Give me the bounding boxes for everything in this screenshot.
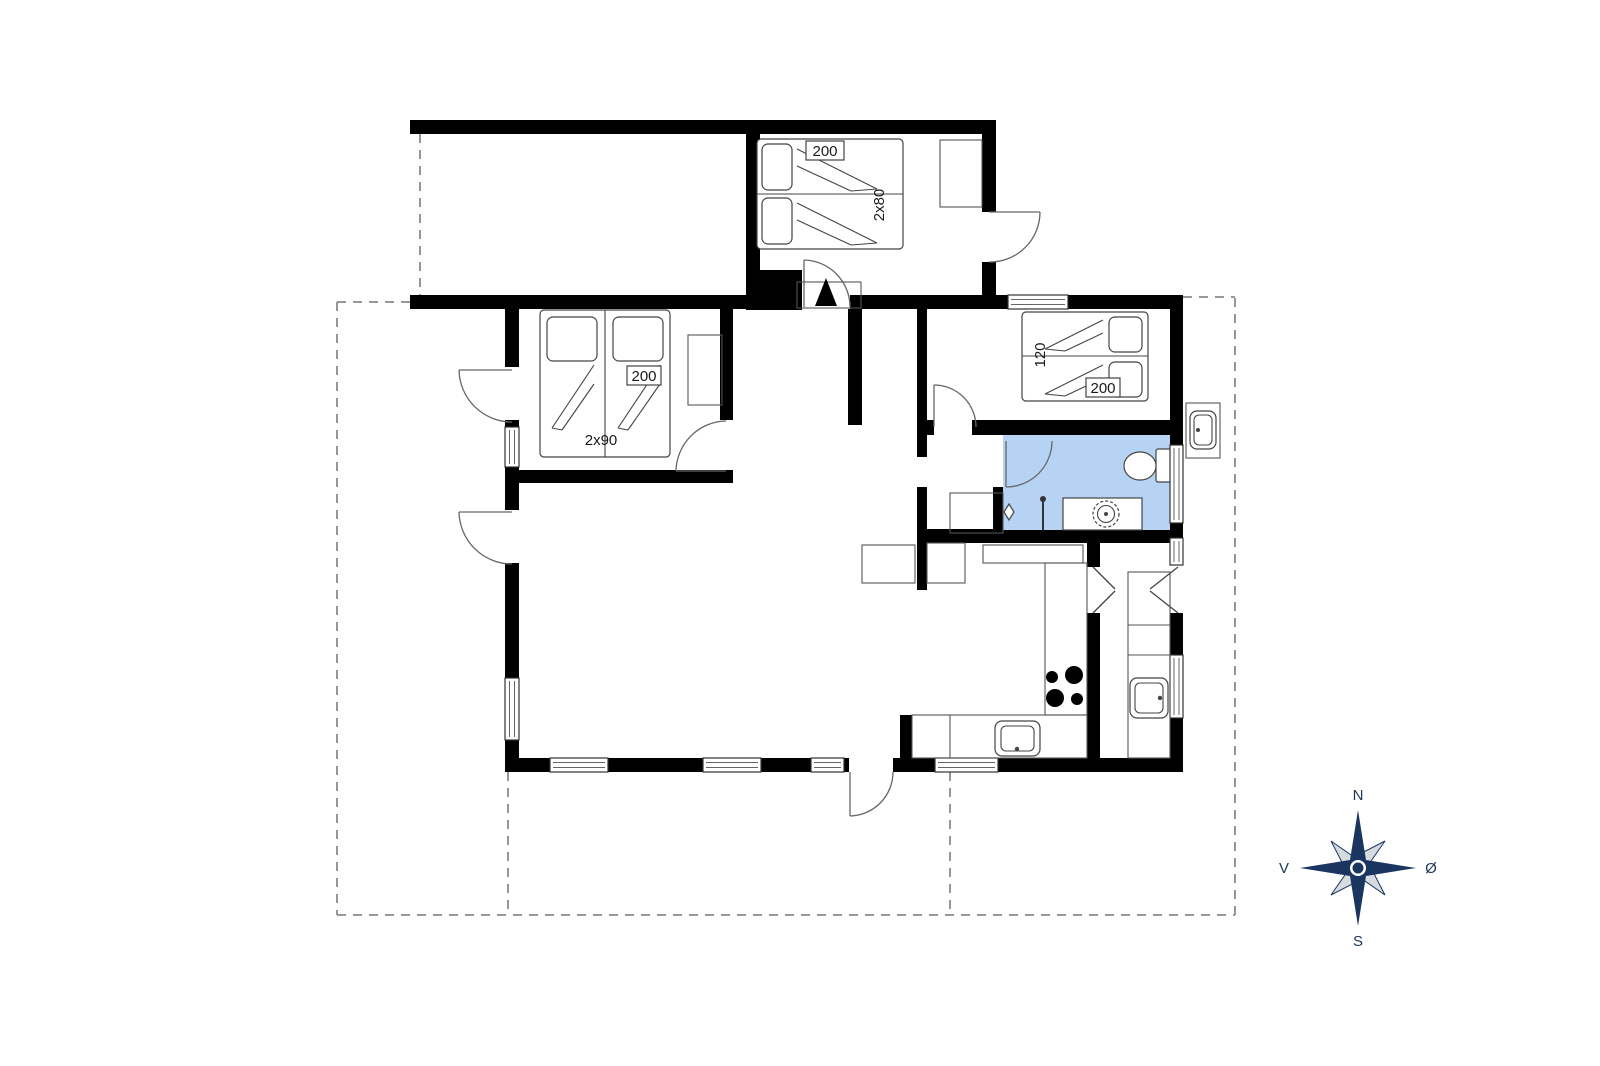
kitchen-counter-top: [983, 545, 1083, 563]
wall-bedroom-right-south-a: [927, 420, 934, 435]
window-west-bedroom-left: [505, 427, 519, 467]
window-east-hall: [1170, 538, 1183, 565]
stove: [1046, 666, 1083, 707]
compass-north-label: N: [1353, 787, 1364, 804]
wall-south-3: [761, 758, 811, 772]
bed-length-label: 200: [1090, 380, 1115, 397]
wall-east-4: [1170, 718, 1183, 772]
window-north-bedroom-right: [1008, 295, 1068, 309]
window-south-2: [703, 758, 761, 772]
floor-plan-canvas: 200 2x80 200 2x90 120 200: [0, 0, 1600, 1066]
wall-east-3: [1170, 613, 1183, 655]
window-east-bathroom: [1170, 445, 1183, 523]
window-south-3: [811, 758, 844, 772]
kitchen: [912, 543, 1087, 758]
openings: [1093, 567, 1178, 613]
pillow: [547, 317, 597, 361]
opening-kitchen-hall-a: [1093, 567, 1115, 589]
wall-south-6: [998, 758, 1183, 772]
wall-kitchen-divider-b: [1087, 613, 1100, 758]
bed-width-label: 2x80: [871, 189, 888, 222]
compass-rose: N S V Ø: [1279, 787, 1437, 950]
window-south-1: [550, 758, 608, 772]
door-bedroom-right: [934, 385, 976, 427]
utility-counter: [1128, 572, 1170, 758]
wall-annex-east-upper: [982, 134, 996, 212]
kitchen-cabinet-nw: [927, 543, 965, 583]
pillow: [613, 317, 663, 361]
wall-west-2: [505, 420, 519, 427]
pillow: [762, 144, 792, 190]
pillow: [762, 198, 792, 244]
door-living-exterior-west: [459, 512, 512, 564]
door-living-exterior-south: [850, 772, 893, 816]
wardrobe-bedroom-left: [688, 335, 722, 405]
wall-south-4: [844, 758, 849, 772]
compass-south-label: S: [1353, 933, 1363, 950]
window-east-utility: [1170, 655, 1183, 718]
wall-west-4: [505, 563, 519, 678]
toilet: [1124, 449, 1172, 482]
wall-annex-north: [410, 120, 996, 134]
opening-east-a: [1150, 567, 1178, 589]
wall-hall-west: [848, 309, 862, 425]
wall-bedroom-right-south-b: [972, 420, 1183, 435]
outdoor-sink: [1186, 403, 1220, 458]
bed-left-twin: 200 2x90: [540, 310, 670, 457]
door-bedroom-left-exterior: [459, 370, 512, 422]
window-west-living: [505, 678, 519, 740]
wall-entry-chunk: [746, 270, 802, 310]
door-bedroom-left-interior: [676, 421, 726, 471]
wall-north-b: [1068, 295, 1183, 309]
bed-length-label: 200: [812, 143, 837, 160]
wall-west-1: [505, 309, 519, 367]
opening-kitchen-hall-b: [1093, 591, 1115, 613]
wall-north-a: [850, 295, 1008, 309]
utility-sink: [1130, 678, 1168, 718]
bed-right-twin: 120 200: [1022, 312, 1148, 401]
compass-west-label: V: [1279, 860, 1289, 877]
opening-east-b: [1150, 591, 1178, 613]
wall-carport-south: [410, 295, 746, 309]
wall-south-2: [608, 758, 703, 772]
wall-south-5: [893, 758, 935, 772]
wall-hall-east-a: [917, 309, 927, 457]
compass-east-label: Ø: [1425, 860, 1437, 877]
bathroom-vanity: [1063, 498, 1142, 530]
utility-room: [1128, 572, 1170, 758]
bed-annex-double: 200 2x80: [757, 139, 903, 249]
kitchen-sink: [995, 721, 1040, 756]
compass-center: [1353, 863, 1364, 874]
bathroom: [1003, 435, 1172, 530]
bed-width-label: 120: [1032, 342, 1049, 367]
wardrobe-annex: [940, 140, 982, 207]
wall-kitchen-divider-a: [1087, 543, 1100, 567]
wall-bathroom-south: [917, 529, 1183, 543]
door-annex-bedroom-exterior: [989, 212, 1040, 262]
bed-length-label: 200: [631, 368, 656, 385]
wall-south-1: [505, 758, 550, 772]
wall-bedroom-left-south: [505, 470, 733, 483]
wall-kitchen-stub: [900, 715, 912, 772]
floor-plan-page: 200 2x80 200 2x90 120 200: [0, 0, 1600, 1066]
sideboard-living: [862, 545, 915, 583]
basin-drain: [1104, 512, 1108, 516]
window-south-4: [935, 758, 998, 772]
pillow: [1109, 317, 1142, 352]
bed-width-label: 2x90: [585, 432, 618, 449]
